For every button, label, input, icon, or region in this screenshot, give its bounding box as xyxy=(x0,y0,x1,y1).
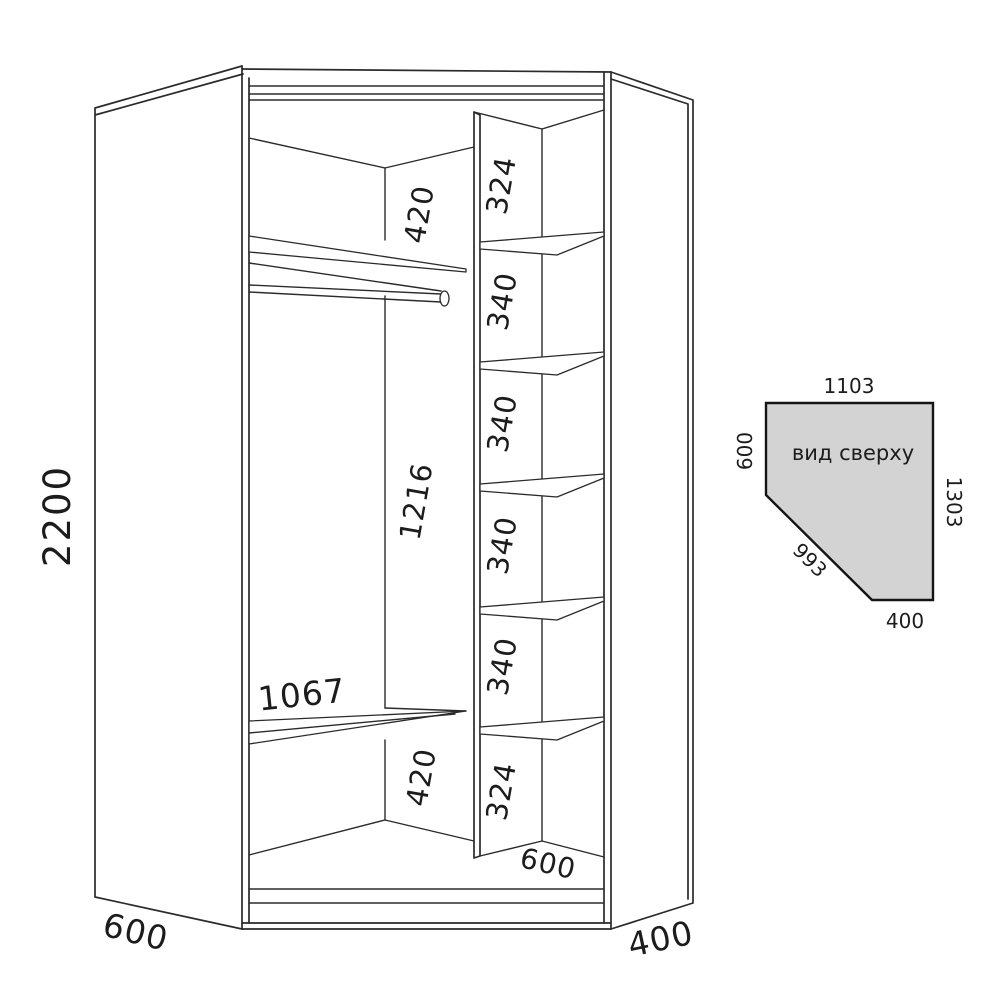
top-view-dim-bottom: 400 xyxy=(886,609,924,633)
dim-height: 2200 xyxy=(36,465,79,567)
hanging-rod xyxy=(249,285,441,302)
dim-width-left: 600 xyxy=(99,905,172,959)
upper-shelf-board xyxy=(249,236,466,272)
top-view-inset: вид сверху 1103 600 1303 993 400 xyxy=(733,374,966,633)
back-wall-top-left xyxy=(249,138,385,168)
top-view-dim-left: 600 xyxy=(733,432,757,470)
dim-left-bottom-gap: 420 xyxy=(399,746,443,809)
dim-compartment-5: 340 xyxy=(480,635,524,698)
wardrobe-technical-drawing: 2200 600 400 600 1067 420 1216 420 324 3… xyxy=(0,0,1000,1000)
dim-compartment-1: 324 xyxy=(479,154,523,217)
carcass-right-panel xyxy=(611,72,693,929)
dim-left-top-gap: 420 xyxy=(397,183,441,246)
lower-shelf-back-sliver xyxy=(385,708,466,711)
top-view-dim-right: 1303 xyxy=(942,477,966,528)
top-band-and-rail xyxy=(249,86,604,100)
main-dimension-labels: 2200 600 400 600 1067 420 1216 420 xyxy=(36,183,697,965)
dim-compartment-2: 340 xyxy=(480,270,524,333)
right-panel-outline xyxy=(611,72,693,929)
front-left-stile xyxy=(242,66,249,929)
top-front-edge xyxy=(242,69,611,72)
dim-shelf-width: 1067 xyxy=(256,671,348,719)
dim-compartment-3: 340 xyxy=(480,392,524,455)
bottom-plinth-lines xyxy=(249,889,604,903)
carcass-left-panel xyxy=(95,66,243,929)
hanging-section xyxy=(249,236,466,306)
left-panel-outline xyxy=(95,66,243,929)
top-view-outline xyxy=(766,403,933,600)
hanging-rod-end-cap xyxy=(440,291,449,306)
dim-left-middle-gap: 1216 xyxy=(393,460,440,543)
shelf-column-back-top xyxy=(542,110,604,129)
divider-top-edge xyxy=(474,112,542,129)
front-right-stile xyxy=(604,72,611,929)
back-wall-top-right xyxy=(385,147,474,168)
dim-compartment-6: 324 xyxy=(479,760,523,823)
dim-compartment-4: 340 xyxy=(480,514,524,577)
bottom-front-edge xyxy=(242,923,611,929)
top-view-title: вид сверху xyxy=(792,441,914,465)
divider-front-edge xyxy=(474,112,480,858)
floor-edges xyxy=(249,820,474,855)
top-view-dim-top: 1103 xyxy=(824,374,875,398)
